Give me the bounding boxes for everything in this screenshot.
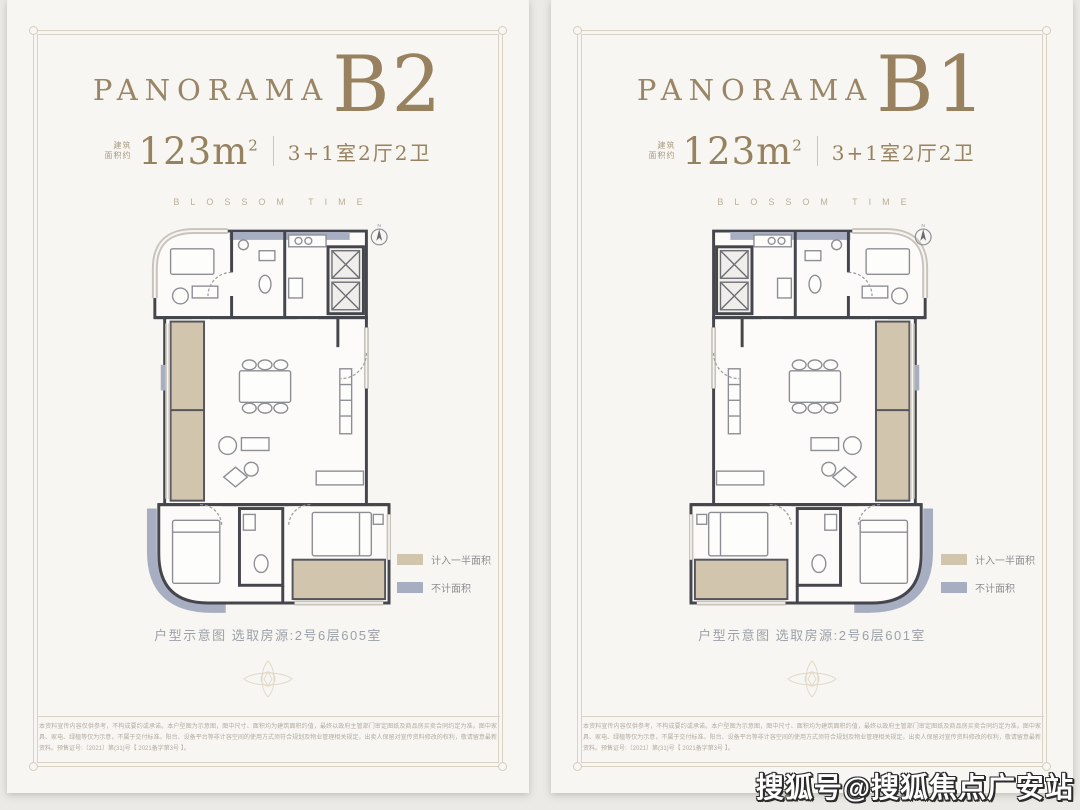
area-label-line1: 建筑 bbox=[649, 141, 676, 152]
area-label: 建筑 面积约 bbox=[649, 141, 676, 163]
legend-row-half-area: 计入一半面积 bbox=[941, 552, 1035, 567]
frame-corner-ornament bbox=[573, 26, 582, 35]
brand-title: PANORAMA bbox=[93, 73, 329, 107]
area-superscript: 2 bbox=[248, 137, 259, 155]
room-layout: 3+1室2厅2卫 bbox=[288, 137, 432, 166]
compass-north-icon: N bbox=[371, 223, 387, 245]
legend-label: 不计面积 bbox=[431, 580, 471, 595]
unit-name: B1 bbox=[876, 54, 987, 118]
legend-swatch-not-counted bbox=[397, 582, 423, 593]
plan-caption: 户型示意图 选取房源:2号6层601室 bbox=[551, 625, 1073, 644]
frame-corner-ornament bbox=[29, 762, 38, 771]
panel-header: PANORAMA B2 bbox=[7, 54, 529, 118]
legend-row-half-area: 计入一半面积 bbox=[397, 552, 491, 567]
page: PANORAMA B2 建筑 面积约 123m2 3+1室2厅2卫 BLOSSO… bbox=[0, 0, 1080, 810]
legend-swatch-half-area bbox=[941, 554, 967, 565]
tagline: BLOSSOM TIME bbox=[7, 197, 529, 207]
legend-swatch-not-counted bbox=[941, 582, 967, 593]
svg-text:N: N bbox=[921, 223, 925, 229]
divider-line bbox=[37, 716, 500, 717]
legend: 计入一半面积 不计面积 bbox=[941, 552, 1035, 595]
area-label-line2: 面积约 bbox=[105, 151, 132, 162]
legend-label: 计入一半面积 bbox=[975, 552, 1035, 567]
unit-name: B2 bbox=[332, 54, 443, 118]
frame-corner-ornament bbox=[29, 26, 38, 35]
floor-plan-wrap: N bbox=[689, 221, 935, 615]
area-value: 123m2 bbox=[139, 130, 259, 173]
floorplan-panel-b2: PANORAMA B2 建筑 面积约 123m2 3+1室2厅2卫 BLOSSO… bbox=[7, 0, 529, 793]
tagline: BLOSSOM TIME bbox=[551, 197, 1073, 207]
area-label-line1: 建筑 bbox=[105, 141, 132, 152]
floor-plan-b2: N bbox=[145, 221, 391, 615]
legend-swatch-half-area bbox=[397, 554, 423, 565]
floorplan-panel-b1: PANORAMA B1 建筑 面积约 123m2 3+1室2厅2卫 BLOSSO… bbox=[551, 0, 1073, 793]
area-number: 123m bbox=[139, 130, 249, 173]
medallion-ornament bbox=[239, 656, 297, 702]
area-value: 123m2 bbox=[683, 130, 803, 173]
legend-label: 计入一半面积 bbox=[431, 552, 491, 567]
area-label-line2: 面积约 bbox=[649, 151, 676, 162]
vertical-divider bbox=[817, 136, 818, 166]
frame-corner-ornament bbox=[498, 762, 507, 771]
brand-title: PANORAMA bbox=[637, 73, 873, 107]
legend-label: 不计面积 bbox=[975, 580, 1015, 595]
legend-row-not-counted: 不计面积 bbox=[397, 580, 491, 595]
frame-corner-ornament bbox=[1042, 26, 1051, 35]
area-info-row: 建筑 面积约 123m2 3+1室2厅2卫 bbox=[7, 130, 529, 173]
area-info-row: 建筑 面积约 123m2 3+1室2厅2卫 bbox=[551, 130, 1073, 173]
divider-line bbox=[581, 716, 1044, 717]
plan-caption: 户型示意图 选取房源:2号6层605室 bbox=[7, 625, 529, 644]
legend: 计入一半面积 不计面积 bbox=[397, 552, 491, 595]
area-label: 建筑 面积约 bbox=[105, 141, 132, 163]
floor-plan-wrap: N bbox=[145, 221, 391, 615]
area-superscript: 2 bbox=[792, 137, 803, 155]
medallion-ornament bbox=[783, 656, 841, 702]
frame-corner-ornament bbox=[573, 762, 582, 771]
area-number: 123m bbox=[683, 130, 793, 173]
vertical-divider bbox=[273, 136, 274, 166]
disclaimer-text: 本资料宣传内容仅供参考，不构成要约或承诺。本户型图为示意图，图中尺寸、面积均为建… bbox=[583, 722, 1041, 755]
panel-header: PANORAMA B1 bbox=[551, 54, 1073, 118]
watermark: 搜狐号@搜狐焦点广安站 bbox=[756, 766, 1074, 806]
room-layout: 3+1室2厅2卫 bbox=[832, 137, 976, 166]
legend-row-not-counted: 不计面积 bbox=[941, 580, 1035, 595]
frame-corner-ornament bbox=[498, 26, 507, 35]
disclaimer-text: 本资料宣传内容仅供参考，不构成要约或承诺。本户型图为示意图，图中尺寸、面积均为建… bbox=[39, 722, 497, 755]
floor-plan-b1: N bbox=[689, 221, 935, 615]
svg-text:N: N bbox=[377, 223, 381, 229]
